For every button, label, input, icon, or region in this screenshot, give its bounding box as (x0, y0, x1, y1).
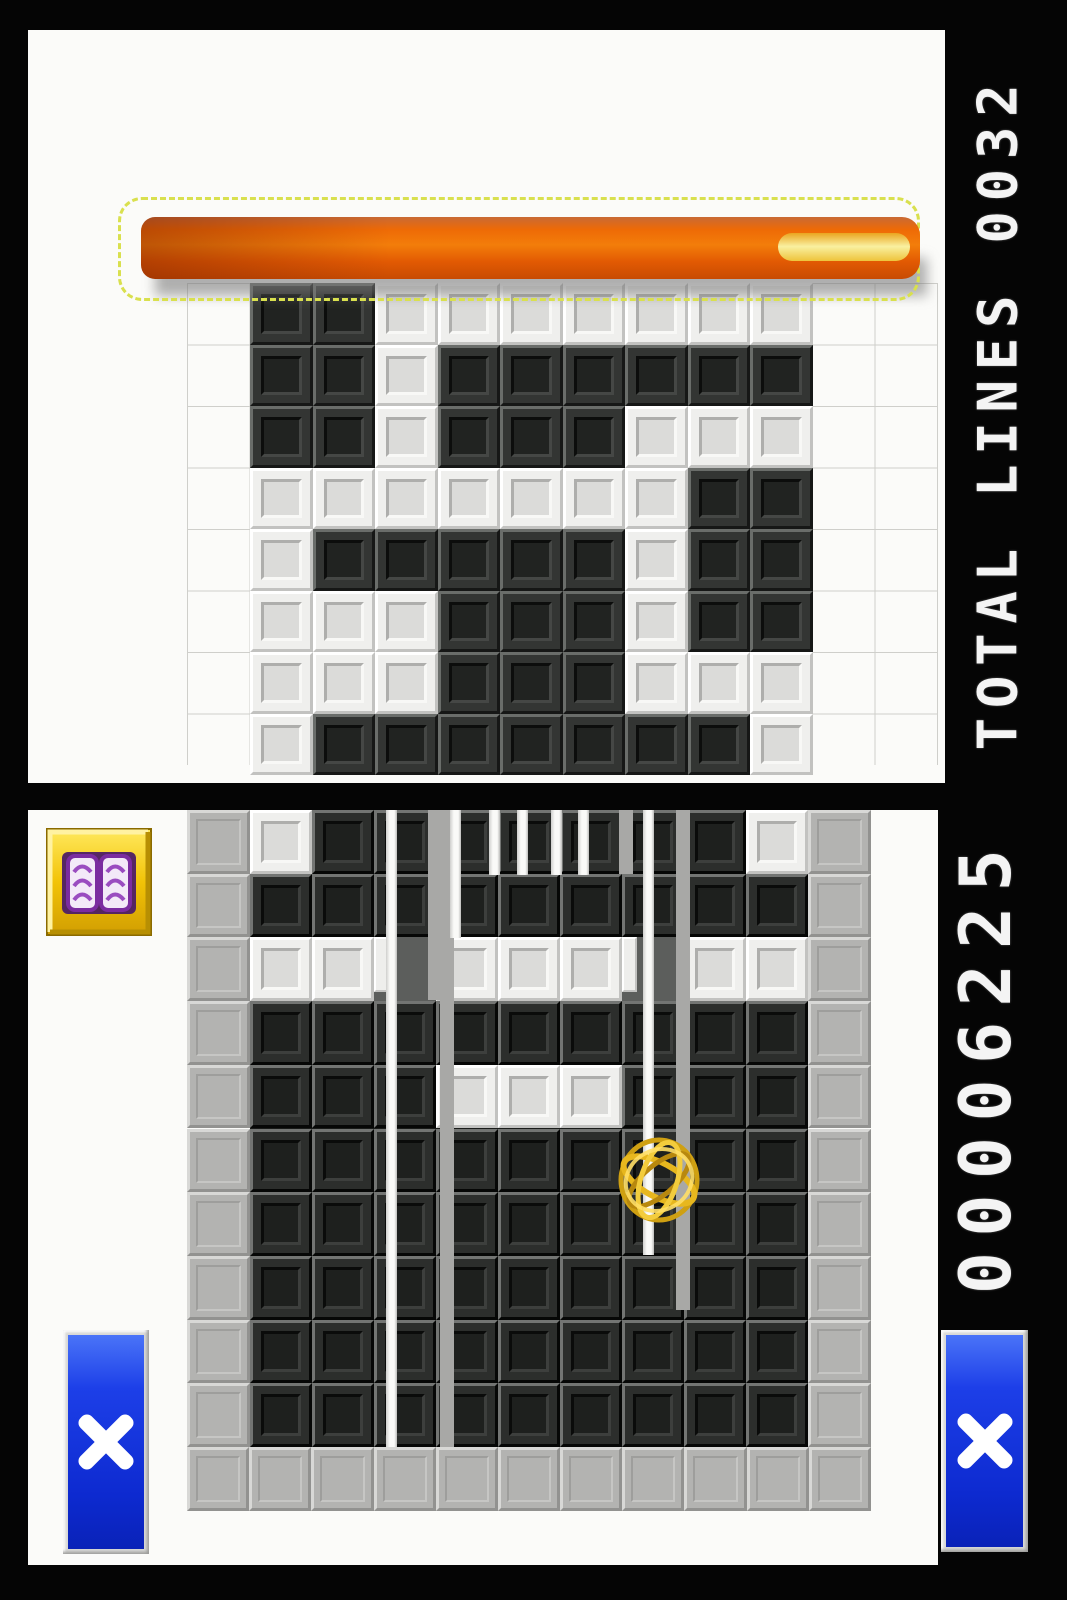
white-trail-stripe (386, 810, 397, 1447)
white-tile (438, 468, 501, 530)
black-tile[interactable] (746, 1129, 808, 1193)
black-tile (500, 714, 563, 776)
border-gray-tile (808, 1192, 872, 1256)
black-tile[interactable] (312, 1065, 374, 1129)
black-tile[interactable] (374, 1065, 436, 1129)
black-tile (500, 591, 563, 653)
border-gray-tile (808, 1256, 872, 1320)
black-tile[interactable] (746, 874, 808, 938)
black-tile (563, 406, 626, 468)
border-gray-tile (187, 937, 250, 1001)
border-gray-tile (187, 1320, 250, 1384)
white-tile (250, 529, 313, 591)
white-trail-stripe (450, 810, 461, 938)
black-tile (313, 406, 376, 468)
score-display: 00006225 (942, 806, 1030, 1322)
black-tile (500, 406, 563, 468)
white-tile (688, 406, 751, 468)
black-tile[interactable] (560, 1383, 622, 1447)
white-tile (313, 652, 376, 714)
top-puzzle-grid (250, 283, 813, 775)
black-tile (750, 529, 813, 591)
black-tile[interactable] (560, 1256, 622, 1320)
white-tile (375, 468, 438, 530)
border-gray-tile (808, 937, 872, 1001)
black-tile[interactable] (498, 1256, 560, 1320)
white-trail-stripe (517, 810, 528, 875)
black-tile[interactable] (250, 874, 312, 938)
black-tile (250, 345, 313, 407)
black-tile[interactable] (498, 1192, 560, 1256)
ds-screenshot: TOTAL LINES 0032 (0, 0, 1067, 1600)
black-tile[interactable] (312, 874, 374, 938)
border-gray-tile (808, 810, 872, 874)
black-tile (563, 714, 626, 776)
black-tile[interactable] (560, 1001, 622, 1065)
black-tile[interactable] (250, 1001, 312, 1065)
black-tile (438, 652, 501, 714)
white-tile[interactable] (684, 937, 746, 1001)
black-tile (500, 345, 563, 407)
border-gray-tile (374, 1447, 436, 1511)
white-tile (563, 468, 626, 530)
black-tile[interactable] (374, 1129, 436, 1193)
black-tile[interactable] (312, 1001, 374, 1065)
white-tile (375, 406, 438, 468)
stylus-cursor-icon (613, 1133, 705, 1227)
black-tile[interactable] (374, 1192, 436, 1256)
close-button-face (946, 1335, 1023, 1547)
black-tile[interactable] (746, 1001, 808, 1065)
white-tile[interactable] (746, 937, 808, 1001)
border-gray-tile (187, 810, 250, 874)
border-gray-tile (187, 1192, 250, 1256)
white-tile[interactable] (746, 810, 808, 874)
black-tile[interactable] (684, 810, 746, 874)
black-tile[interactable] (746, 1192, 808, 1256)
black-tile[interactable] (374, 874, 436, 938)
black-tile[interactable] (374, 1320, 436, 1384)
black-tile[interactable] (374, 1001, 436, 1065)
black-tile[interactable] (746, 1320, 808, 1384)
black-tile[interactable] (560, 810, 622, 874)
black-tile (688, 714, 751, 776)
close-button-right[interactable] (941, 1330, 1028, 1552)
black-tile (688, 468, 751, 530)
white-trail-stripe (489, 810, 500, 875)
black-tile[interactable] (498, 874, 560, 938)
black-tile[interactable] (746, 1256, 808, 1320)
black-tile[interactable] (622, 1256, 684, 1320)
black-tile[interactable] (312, 810, 374, 874)
gray-trail-stripe (428, 810, 442, 1000)
black-tile[interactable] (312, 1192, 374, 1256)
white-tile (250, 591, 313, 653)
black-tile[interactable] (684, 1383, 746, 1447)
black-tile (688, 345, 751, 407)
border-gray-tile (187, 1129, 250, 1193)
border-gray-tile (498, 1447, 560, 1511)
black-tile[interactable] (684, 874, 746, 938)
black-tile[interactable] (498, 1383, 560, 1447)
border-gray-tile (187, 874, 250, 938)
black-tile (250, 406, 313, 468)
white-tile (625, 468, 688, 530)
flipping-tile[interactable] (374, 937, 436, 1001)
white-tile (313, 591, 376, 653)
white-tile (375, 652, 438, 714)
white-tile[interactable] (250, 937, 312, 1001)
white-tile (625, 529, 688, 591)
white-tile (500, 468, 563, 530)
border-gray-tile (187, 1001, 250, 1065)
black-tile[interactable] (498, 1001, 560, 1065)
black-tile[interactable] (622, 1383, 684, 1447)
black-tile[interactable] (374, 1383, 436, 1447)
white-tile[interactable] (250, 810, 312, 874)
white-tile[interactable] (312, 937, 374, 1001)
black-tile[interactable] (560, 874, 622, 938)
black-tile (438, 529, 501, 591)
white-trail-stripe (551, 810, 562, 875)
border-gray-tile (436, 1447, 498, 1511)
black-tile[interactable] (746, 1383, 808, 1447)
black-tile[interactable] (250, 1129, 312, 1193)
gold-wireframe-ball-icon (613, 1133, 705, 1227)
black-tile[interactable] (746, 1065, 808, 1129)
black-tile[interactable] (374, 810, 436, 874)
border-gray-tile (187, 1065, 250, 1129)
white-tile (750, 652, 813, 714)
border-gray-tile (808, 1001, 872, 1065)
close-button-face (68, 1335, 144, 1549)
rules-book-button[interactable] (46, 828, 152, 936)
border-gray-tile (808, 1383, 872, 1447)
black-tile (438, 345, 501, 407)
black-tile (750, 591, 813, 653)
gray-trail-stripe (676, 810, 690, 1310)
black-tile[interactable] (312, 1320, 374, 1384)
black-tile (750, 468, 813, 530)
black-tile[interactable] (684, 1320, 746, 1384)
white-tile (625, 652, 688, 714)
black-tile (563, 652, 626, 714)
black-tile (313, 529, 376, 591)
black-tile[interactable] (250, 1320, 312, 1384)
white-tile (313, 468, 376, 530)
score-text: 00006225 (945, 834, 1027, 1294)
black-tile (500, 529, 563, 591)
black-tile[interactable] (312, 1256, 374, 1320)
white-tile (688, 652, 751, 714)
white-tile (250, 468, 313, 530)
border-gray-tile (808, 1129, 872, 1193)
black-tile (625, 345, 688, 407)
black-tile (563, 591, 626, 653)
border-gray-tile (747, 1447, 809, 1511)
white-tile (250, 714, 313, 776)
white-tile (375, 345, 438, 407)
timer-bar (141, 217, 920, 279)
black-tile (313, 345, 376, 407)
black-tile[interactable] (684, 1256, 746, 1320)
timer-remaining-pill (778, 233, 910, 261)
black-tile[interactable] (684, 1001, 746, 1065)
border-gray-tile (808, 874, 872, 938)
total-lines-text: TOTAL LINES 0032 (967, 74, 1030, 750)
black-tile (563, 529, 626, 591)
black-tile[interactable] (250, 1256, 312, 1320)
black-tile[interactable] (250, 1383, 312, 1447)
border-gray-tile (809, 1447, 871, 1511)
border-gray-tile (560, 1447, 622, 1511)
x-cross-icon (946, 1335, 1023, 1547)
black-tile[interactable] (622, 1320, 684, 1384)
white-tile[interactable] (498, 1065, 560, 1129)
white-tile (750, 406, 813, 468)
white-tile (250, 652, 313, 714)
border-gray-tile (187, 1256, 250, 1320)
black-tile (688, 529, 751, 591)
black-tile[interactable] (374, 1256, 436, 1320)
border-gray-tile (808, 1065, 872, 1129)
black-tile (313, 714, 376, 776)
black-tile[interactable] (312, 1383, 374, 1447)
x-cross-icon (68, 1335, 144, 1549)
border-gray-tile (249, 1447, 311, 1511)
black-tile (563, 345, 626, 407)
border-gray-tile (684, 1447, 746, 1511)
black-tile[interactable] (560, 1320, 622, 1384)
black-tile[interactable] (312, 1129, 374, 1193)
border-gray-tile (187, 1447, 249, 1511)
total-lines-score: TOTAL LINES 0032 (948, 76, 1048, 748)
white-trail-stripe (578, 810, 589, 875)
white-tile (625, 591, 688, 653)
black-tile (500, 652, 563, 714)
black-tile (688, 591, 751, 653)
white-tile (375, 591, 438, 653)
bottom-puzzle-grid[interactable] (187, 810, 871, 1511)
border-gray-tile (808, 1320, 872, 1384)
white-tile[interactable] (560, 937, 622, 1001)
black-tile (438, 406, 501, 468)
open-book-icon (46, 828, 152, 936)
black-tile (750, 345, 813, 407)
black-tile (375, 714, 438, 776)
white-tile (750, 714, 813, 776)
black-tile[interactable] (498, 1320, 560, 1384)
white-tile[interactable] (560, 1065, 622, 1129)
white-tile[interactable] (498, 937, 560, 1001)
border-gray-tile (187, 1383, 250, 1447)
black-tile[interactable] (250, 1192, 312, 1256)
close-button-left[interactable] (63, 1330, 149, 1554)
border-gray-tile (622, 1447, 684, 1511)
black-tile (375, 529, 438, 591)
gray-trail-stripe (619, 810, 633, 874)
black-tile[interactable] (250, 1065, 312, 1129)
black-tile (625, 714, 688, 776)
black-tile[interactable] (498, 1129, 560, 1193)
black-tile (438, 714, 501, 776)
white-tile (625, 406, 688, 468)
black-tile[interactable] (684, 1065, 746, 1129)
black-tile (438, 591, 501, 653)
border-gray-tile (311, 1447, 373, 1511)
